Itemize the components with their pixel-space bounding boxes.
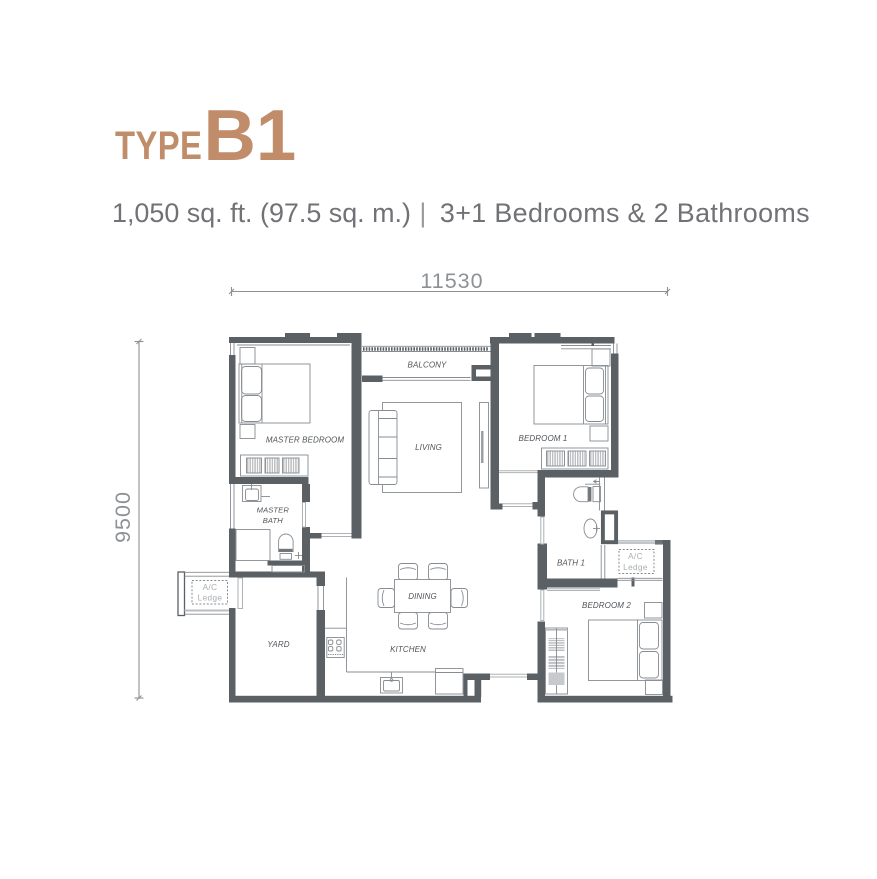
svg-text:BALCONY: BALCONY <box>408 360 447 369</box>
svg-text:MASTER: MASTER <box>257 506 290 515</box>
svg-text:Ledge: Ledge <box>198 594 223 603</box>
svg-text:BATH 1: BATH 1 <box>557 559 585 568</box>
svg-text:YARD: YARD <box>267 640 289 649</box>
svg-text:MASTER BEDROOM: MASTER BEDROOM <box>266 436 345 445</box>
svg-text:DINING: DINING <box>408 592 437 601</box>
svg-text:A/C: A/C <box>203 583 218 592</box>
svg-text:BEDROOM 2: BEDROOM 2 <box>582 601 631 610</box>
svg-text:Ledge: Ledge <box>623 563 648 572</box>
svg-text:LIVING: LIVING <box>415 443 442 452</box>
svg-text:A/C: A/C <box>628 552 643 561</box>
svg-text:11530: 11530 <box>420 269 483 293</box>
svg-text:9500: 9500 <box>111 491 135 543</box>
svg-text:KITCHEN: KITCHEN <box>390 645 426 654</box>
svg-text:BEDROOM 1: BEDROOM 1 <box>519 434 568 443</box>
svg-text:BATH: BATH <box>263 516 284 525</box>
